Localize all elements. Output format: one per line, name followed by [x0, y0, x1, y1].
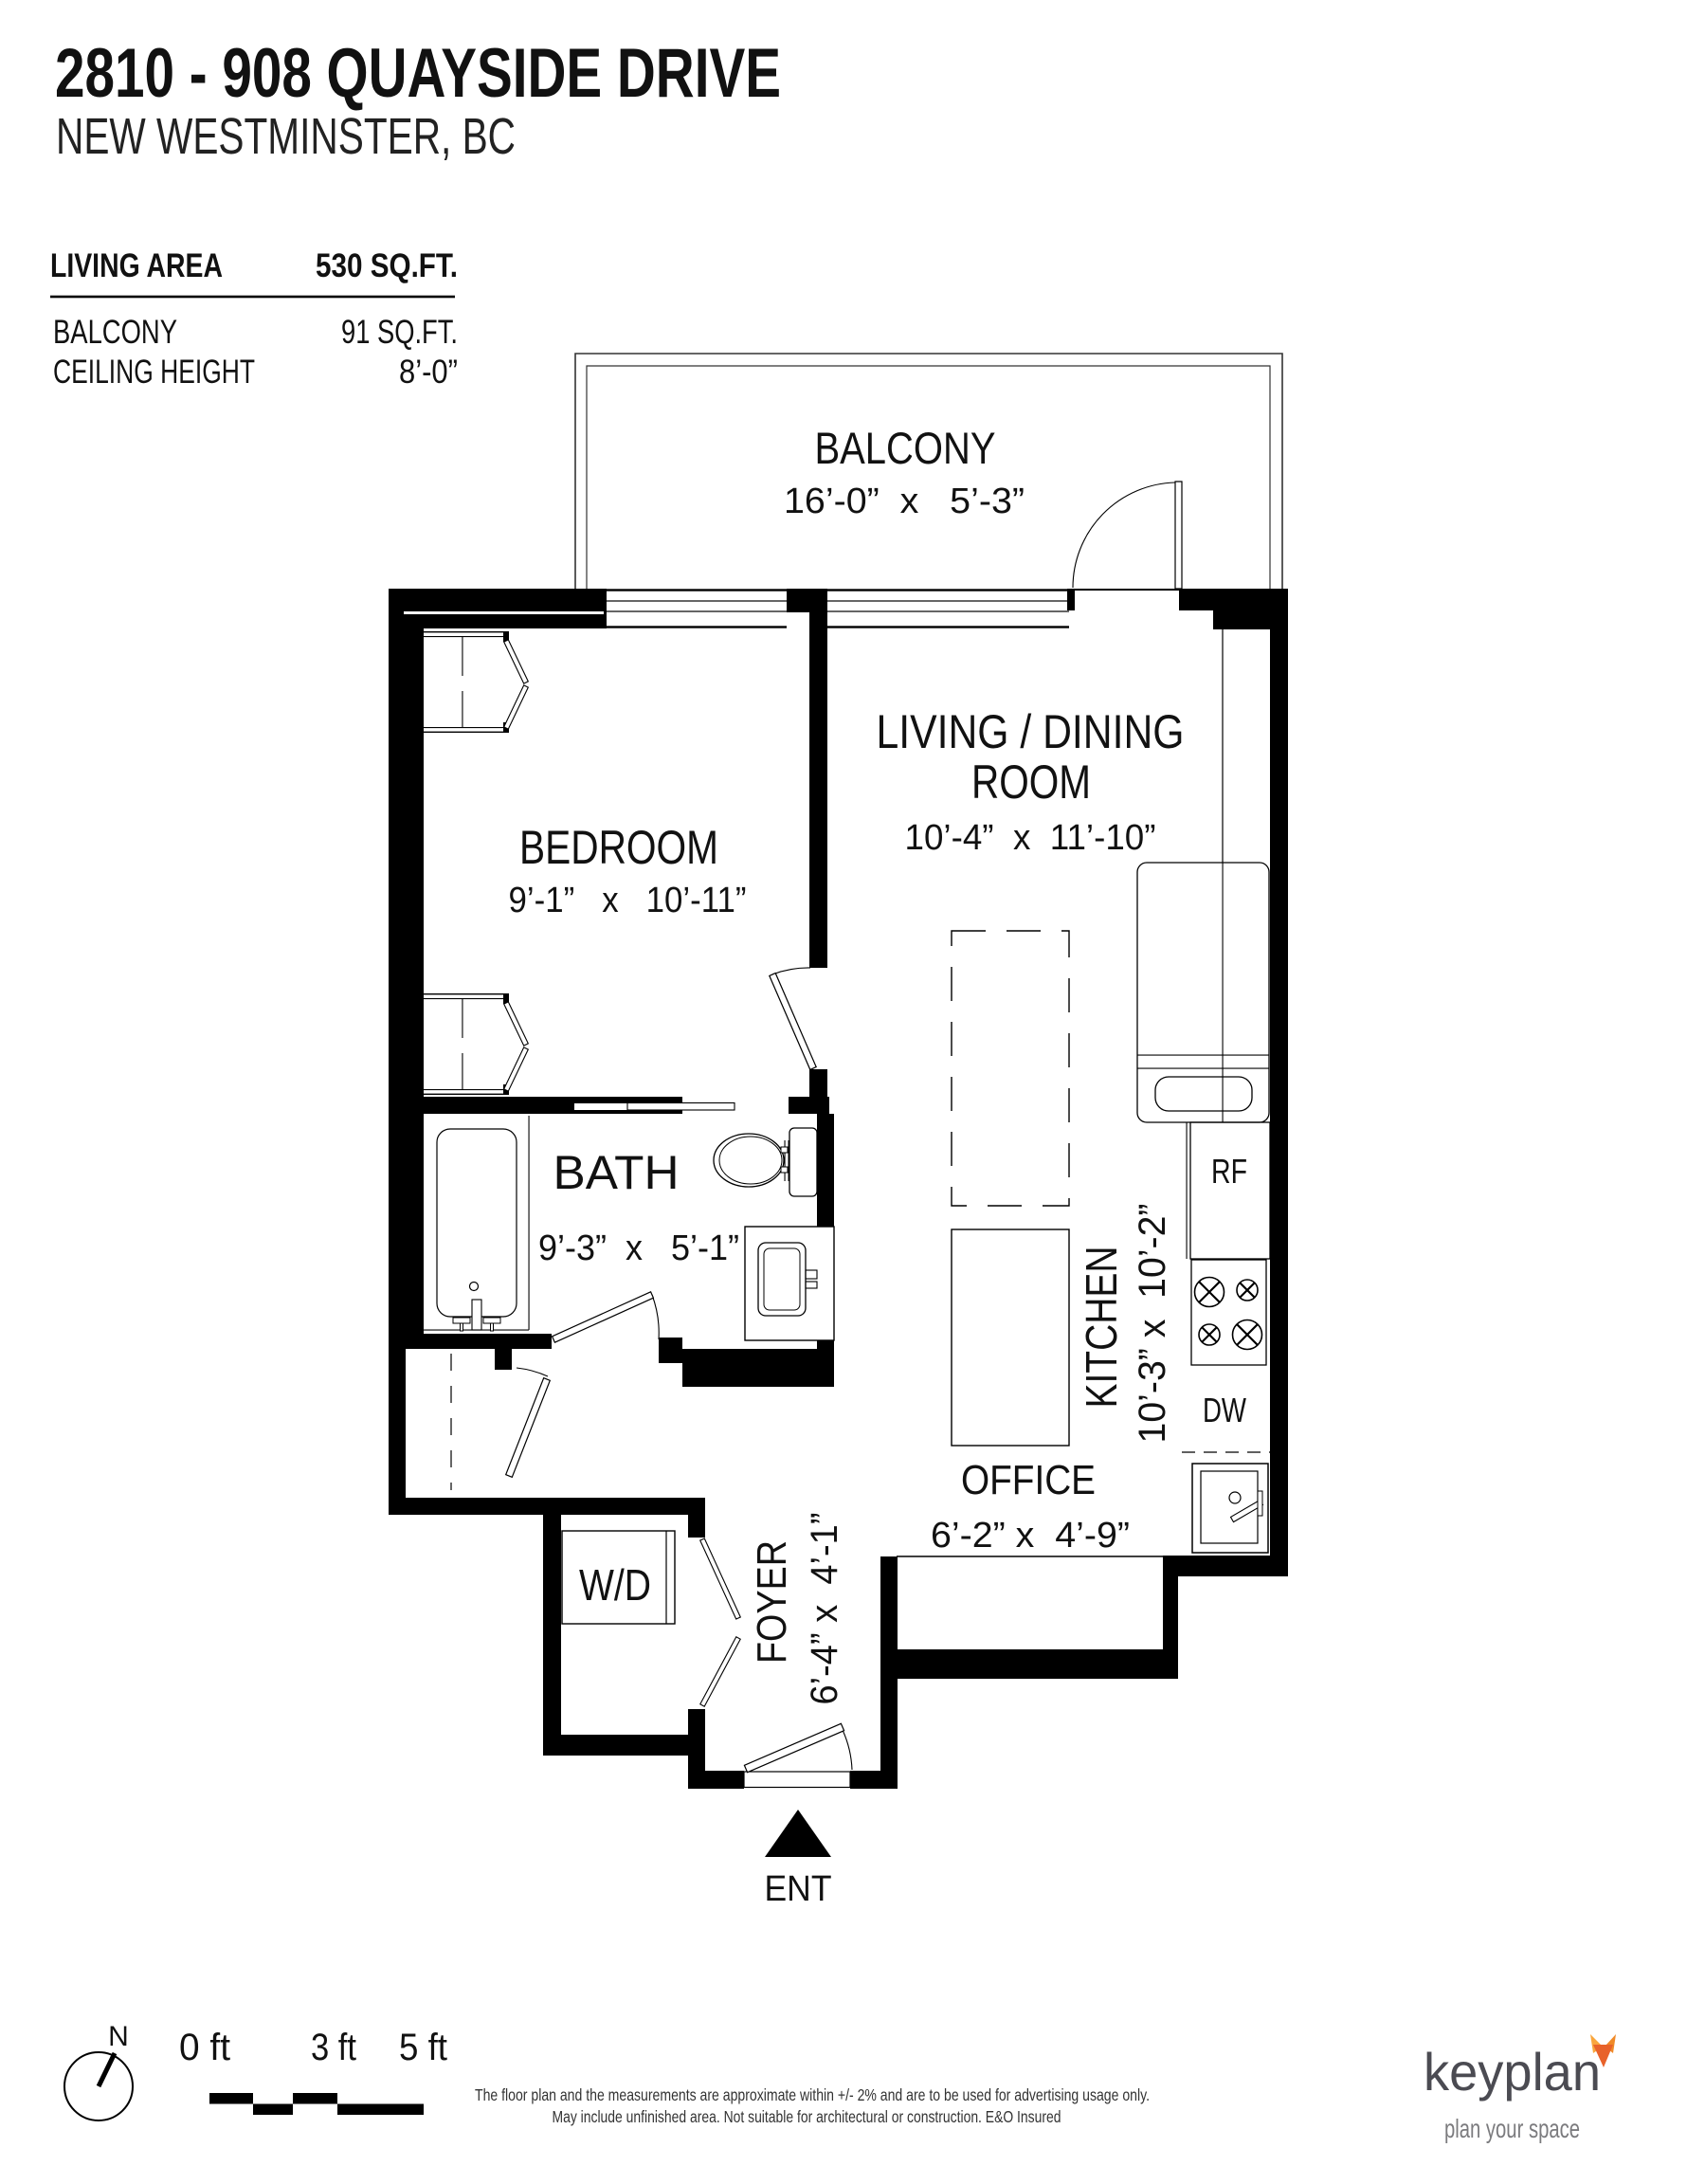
svg-text:2810 - 908 QUAYSIDE DRIVE: 2810 - 908 QUAYSIDE DRIVE	[55, 35, 781, 112]
svg-text:9’-1” x 10’-11”: 9’-1” x 10’-11”	[509, 881, 747, 920]
svg-text:9’-3” x 5’-1”: 9’-3” x 5’-1”	[538, 1228, 739, 1268]
svg-text:May include unfinished area. N: May include unfinished area. Not suitabl…	[553, 2107, 1061, 2126]
svg-text:10’-3” x 10’-2”: 10’-3” x 10’-2”	[1132, 1204, 1173, 1444]
svg-text:10’-4” x 11’-10”: 10’-4” x 11’-10”	[905, 818, 1156, 858]
svg-text:RF: RF	[1211, 1152, 1247, 1191]
svg-text:The floor plan and the measure: The floor plan and the measurements are …	[475, 2085, 1150, 2104]
svg-text:6’-4” x 4’-1”: 6’-4” x 4’-1”	[804, 1513, 845, 1705]
svg-text:plan your space: plan your space	[1444, 2114, 1580, 2143]
svg-text:W/D: W/D	[579, 1560, 651, 1610]
svg-text:16’-0” x 5’-3”: 16’-0” x 5’-3”	[784, 482, 1025, 521]
svg-text:CEILING HEIGHT: CEILING HEIGHT	[53, 354, 255, 391]
svg-text:N: N	[108, 2021, 129, 2052]
svg-text:DW: DW	[1203, 1391, 1246, 1429]
svg-text:LIVING / DINING: LIVING / DINING	[877, 705, 1185, 758]
svg-text:KITCHEN: KITCHEN	[1077, 1247, 1126, 1409]
svg-text:BALCONY: BALCONY	[815, 423, 996, 473]
svg-text:BALCONY: BALCONY	[53, 314, 177, 351]
svg-text:OFFICE: OFFICE	[961, 1457, 1096, 1503]
svg-text:530 SQ.FT.: 530 SQ.FT.	[316, 247, 458, 284]
svg-text:6’-2” x 4’-9”: 6’-2” x 4’-9”	[931, 1516, 1130, 1556]
svg-text:keyplan: keyplan	[1424, 2042, 1601, 2102]
svg-text:BEDROOM: BEDROOM	[519, 821, 718, 874]
svg-text:8’-0”: 8’-0”	[399, 354, 458, 391]
svg-text:LIVING AREA: LIVING AREA	[50, 247, 223, 284]
svg-text:ENT: ENT	[765, 1869, 832, 1909]
svg-text:FOYER: FOYER	[749, 1540, 795, 1664]
svg-text:5 ft: 5 ft	[399, 2027, 447, 2068]
svg-text:BATH: BATH	[553, 1146, 680, 1199]
svg-text:ROOM: ROOM	[971, 755, 1091, 809]
svg-text:3 ft: 3 ft	[311, 2027, 356, 2068]
svg-text:NEW WESTMINSTER, BC: NEW WESTMINSTER, BC	[56, 108, 516, 165]
svg-text:91 SQ.FT.: 91 SQ.FT.	[341, 314, 458, 351]
svg-text:0 ft: 0 ft	[179, 2027, 230, 2068]
